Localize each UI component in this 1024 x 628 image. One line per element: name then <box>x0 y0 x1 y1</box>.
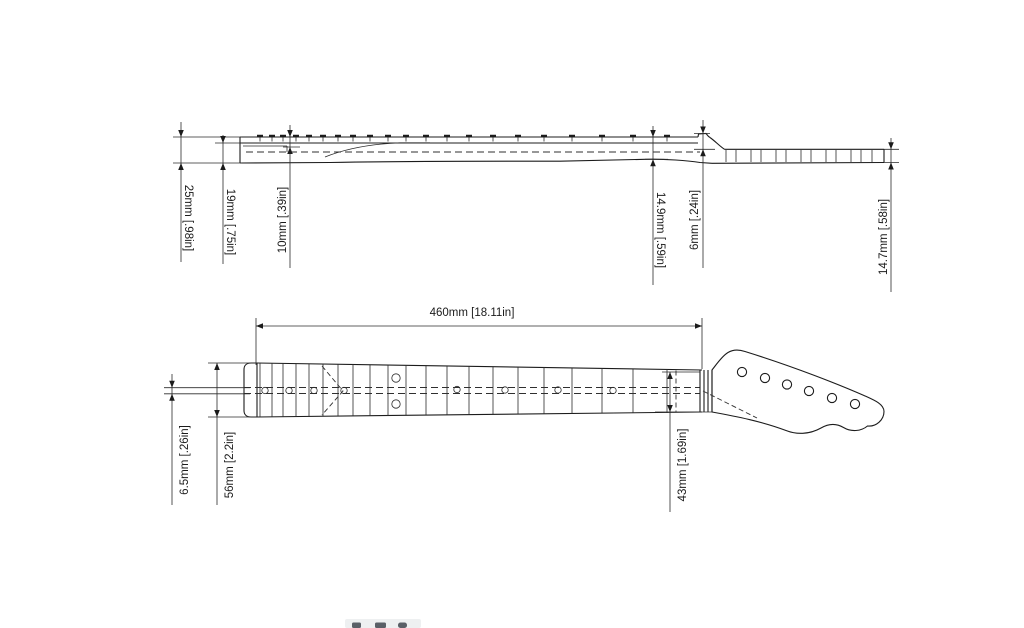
dim-truss-slot-width: 6.5mm [.26in] <box>179 425 191 495</box>
page-toolbar-cutoff <box>345 619 421 628</box>
dim-heel-thickness: 25mm [.98in] <box>182 185 194 251</box>
slot-extension-lines <box>164 388 250 394</box>
dot <box>392 400 400 408</box>
partial-icon[interactable] <box>398 623 407 628</box>
arrow <box>695 323 702 329</box>
arrow <box>169 381 175 388</box>
dim-heel-width: 56mm [2.2in] <box>224 432 236 498</box>
nut-lines <box>700 370 712 412</box>
dot <box>392 374 400 382</box>
hole <box>610 387 616 393</box>
arrow <box>214 363 220 370</box>
tuner-hole <box>760 373 769 382</box>
partial-icon[interactable] <box>352 623 361 628</box>
arrow <box>650 159 656 166</box>
dim-thickness-at-nut: 14.9mm [.59in] <box>654 192 666 268</box>
dim-headstock-thickness: 14.7mm [.58in] <box>878 199 890 275</box>
arrow <box>220 136 226 143</box>
heel-carve-tangent-curve <box>325 143 430 157</box>
arrow <box>256 323 263 329</box>
tuner-hole <box>804 386 813 395</box>
neck-top-edge <box>257 363 702 370</box>
plan-view: 460mm [18.11in] 6.5mm [.26in] 56mm [2.2i… <box>164 307 884 512</box>
dim-truss-depth: 10mm [.39in] <box>277 187 289 253</box>
tuner-hole <box>850 399 859 408</box>
neck-bottom-edge <box>257 412 702 417</box>
tuner-hole <box>827 393 836 402</box>
arrow <box>287 130 293 137</box>
tuner-hole <box>737 367 746 376</box>
arrow <box>178 130 184 137</box>
guitar-neck-drawing: 25mm [.98in] 19mm [.75in] 10mm [.39in] 1… <box>0 0 1024 628</box>
drawing-page: 25mm [.98in] 19mm [.75in] 10mm [.39in] 1… <box>0 0 1024 628</box>
headstock-hidden-diagonal <box>703 391 757 418</box>
arrow <box>650 130 656 137</box>
headstock-face-slope <box>710 138 725 150</box>
tuner-hole-section-lines <box>726 150 872 162</box>
heel-end-cap <box>244 363 257 417</box>
arrow <box>700 149 706 156</box>
fret-lines <box>260 363 667 417</box>
truss-channel-hidden-lines <box>244 388 700 394</box>
hole <box>341 387 347 393</box>
hole <box>262 387 268 393</box>
arrow <box>888 142 894 149</box>
truss-rod-notch <box>243 146 287 152</box>
arrow <box>667 372 673 379</box>
arrow <box>287 147 293 154</box>
hole <box>311 387 317 393</box>
hole <box>502 387 508 393</box>
nut-bump-profile <box>698 134 710 138</box>
headstock-outline <box>712 350 884 433</box>
carve-transition-chevron <box>322 366 343 415</box>
side-view: 25mm [.98in] 19mm [.75in] 10mm [.39in] 1… <box>173 120 899 292</box>
partial-icon[interactable] <box>375 623 386 628</box>
dim-fretboard-length: 460mm [18.11in] <box>430 307 515 319</box>
arrow <box>178 163 184 170</box>
arrow <box>888 163 894 170</box>
hole <box>286 387 292 393</box>
neck-back-line <box>240 159 712 163</box>
offset-dot-pair <box>392 374 400 408</box>
side-extension-lines <box>173 134 899 164</box>
dim-shaft-thickness: 19mm [.75in] <box>224 189 236 255</box>
arrow <box>169 394 175 401</box>
dim-nut-height: 6mm [.24in] <box>689 190 701 250</box>
arrow <box>700 127 706 134</box>
headstock-bottom-line <box>712 163 884 164</box>
tuner-hole <box>782 380 791 389</box>
tuner-holes <box>737 367 859 408</box>
arrow <box>214 410 220 417</box>
arrow <box>667 405 673 412</box>
arrow <box>220 163 226 170</box>
dim-nut-width: 43mm [1.69in] <box>677 429 689 502</box>
